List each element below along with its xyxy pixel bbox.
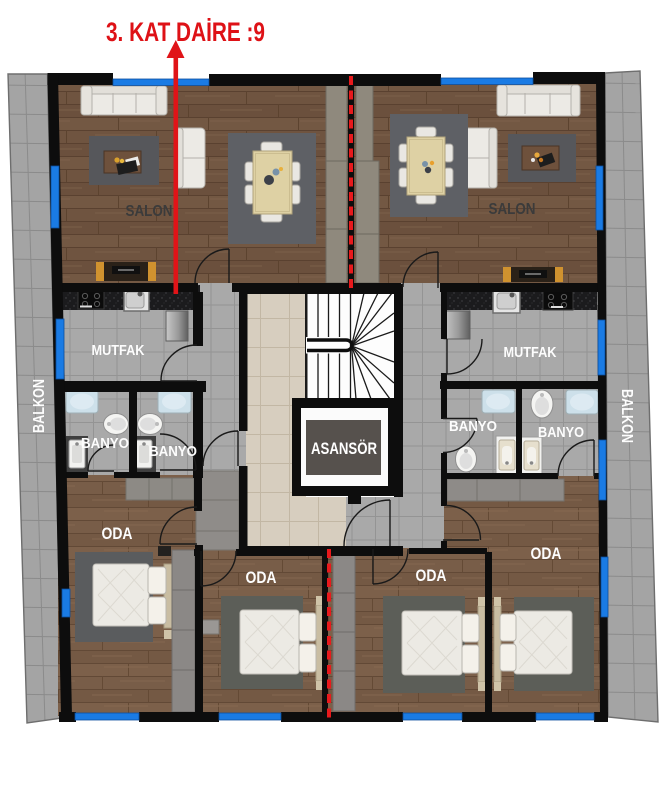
- svg-text:SALON: SALON: [489, 201, 536, 218]
- svg-text:BANYO: BANYO: [149, 443, 197, 460]
- svg-text:ODA: ODA: [102, 524, 133, 543]
- svg-text:MUTFAK: MUTFAK: [504, 344, 557, 361]
- svg-text:ODA: ODA: [416, 566, 447, 585]
- svg-text:BALKON: BALKON: [618, 389, 635, 443]
- svg-text:3. KAT DAİRE :9: 3. KAT DAİRE :9: [106, 17, 265, 47]
- svg-text:SALON: SALON: [126, 203, 173, 220]
- svg-text:ODA: ODA: [246, 568, 277, 587]
- svg-text:MUTFAK: MUTFAK: [92, 342, 145, 359]
- svg-text:BANYO: BANYO: [81, 435, 129, 452]
- svg-text:BANYO: BANYO: [449, 418, 497, 435]
- svg-text:BANYO: BANYO: [538, 424, 584, 441]
- svg-text:BALKON: BALKON: [31, 379, 48, 433]
- svg-text:ASANSÖR: ASANSÖR: [311, 439, 377, 458]
- svg-text:ODA: ODA: [531, 544, 562, 563]
